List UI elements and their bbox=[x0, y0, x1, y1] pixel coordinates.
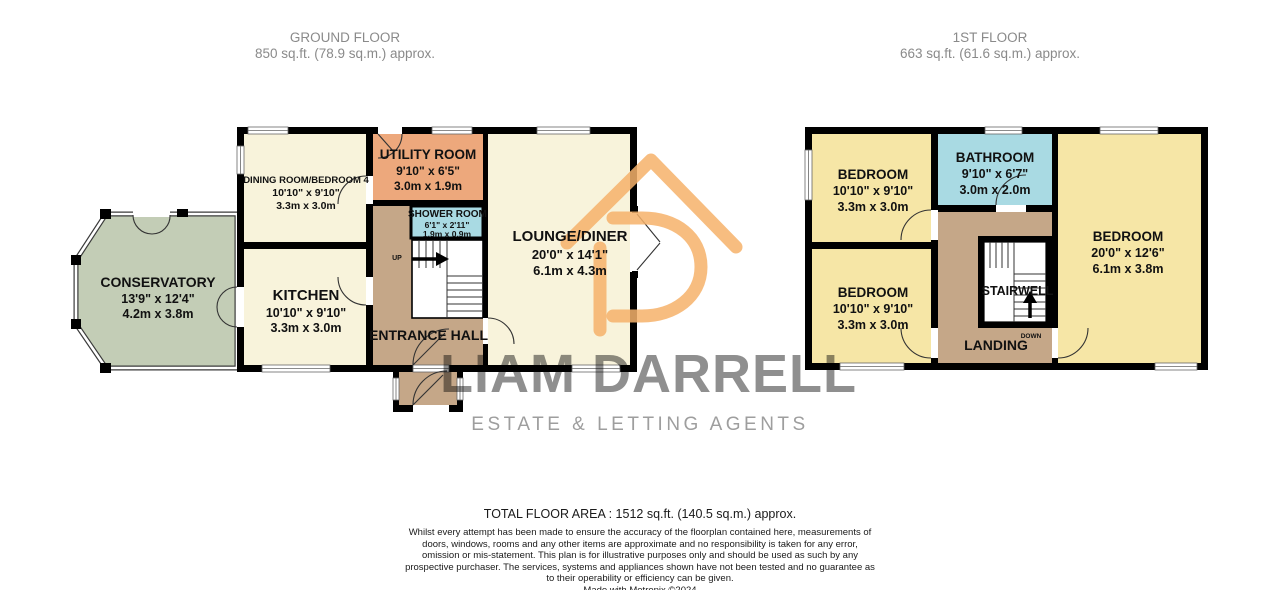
first-stairs bbox=[978, 236, 1052, 328]
room-dim-metric: 3.3m x 3.0m bbox=[246, 321, 366, 337]
floorplan-page: GROUND FLOOR 850 sq.ft. (78.9 sq.m.) app… bbox=[0, 0, 1280, 590]
room-dim-imperial: 20'0" x 14'1" bbox=[495, 247, 645, 263]
label-stairs-up: UP bbox=[388, 255, 406, 264]
label-utility-room: UTILITY ROOM 9'10" x 6'5" 3.0m x 1.9m bbox=[368, 147, 488, 194]
label-shower-room: SHOWER ROOM 6'1" x 2'11" 1.9m x 0.9m bbox=[408, 209, 486, 240]
room-dim-imperial: 9'10" x 6'5" bbox=[368, 164, 488, 179]
room-name: STAIRWELL bbox=[960, 284, 1075, 300]
room-name: DINING ROOM/BEDROOM 4 bbox=[243, 175, 369, 187]
room-name: BATHROOM bbox=[935, 150, 1055, 167]
room-dim-imperial: 20'0" x 12'6" bbox=[1055, 246, 1201, 262]
room-name: BEDROOM bbox=[1055, 229, 1201, 246]
stairs-direction: UP bbox=[388, 255, 406, 264]
room-dim-metric: 6.1m x 4.3m bbox=[495, 263, 645, 279]
room-dim-metric: 3.0m x 2.0m bbox=[935, 183, 1055, 199]
label-entrance-hall: ENTRANCE HALL bbox=[356, 327, 501, 345]
label-bedroom-bottom-left: BEDROOM 10'10" x 9'10" 3.3m x 3.0m bbox=[813, 285, 933, 333]
room-name: ENTRANCE HALL bbox=[356, 327, 501, 345]
label-lounge-diner: LOUNGE/DINER 20'0" x 14'1" 6.1m x 4.3m bbox=[495, 228, 645, 279]
room-dim-metric: 4.2m x 3.8m bbox=[88, 307, 228, 323]
room-dim-imperial: 9'10" x 6'7" bbox=[935, 167, 1055, 183]
room-dim-imperial: 13'9" x 12'4" bbox=[88, 292, 228, 308]
label-stairwell: STAIRWELL bbox=[960, 284, 1075, 300]
watermark-brand: LIAM DARRELL bbox=[440, 347, 840, 401]
room-dim-metric: 1.9m x 0.9m bbox=[408, 230, 486, 240]
label-bedroom-top-left: BEDROOM 10'10" x 9'10" 3.3m x 3.0m bbox=[813, 167, 933, 215]
footer-disclaimer: Whilst every attempt has been made to en… bbox=[405, 527, 875, 590]
label-dining-room: DINING ROOM/BEDROOM 4 10'10" x 9'10" 3.3… bbox=[243, 175, 369, 213]
disclaimer-text: Whilst every attempt has been made to en… bbox=[405, 527, 875, 585]
room-dim-metric: 3.3m x 3.0m bbox=[813, 200, 933, 216]
room-name: LANDING bbox=[935, 337, 1057, 355]
metropix-credit: Made with Metropix ©2024 bbox=[405, 585, 875, 590]
watermark-tagline: ESTATE & LETTING AGENTS bbox=[420, 414, 860, 436]
room-name: BEDROOM bbox=[813, 285, 933, 302]
total-floor-area: TOTAL FLOOR AREA : 1512 sq.ft. (140.5 sq… bbox=[390, 507, 890, 521]
room-name: LOUNGE/DINER bbox=[495, 228, 645, 247]
room-dim-metric: 3.3m x 3.0m bbox=[243, 200, 369, 213]
room-dim-imperial: 10'10" x 9'10" bbox=[813, 184, 933, 200]
room-dim-imperial: 10'10" x 9'10" bbox=[243, 187, 369, 200]
room-dim-imperial: 10'10" x 9'10" bbox=[246, 306, 366, 322]
room-name: CONSERVATORY bbox=[88, 274, 228, 292]
room-dim-imperial: 10'10" x 9'10" bbox=[813, 302, 933, 318]
label-bathroom: BATHROOM 9'10" x 6'7" 3.0m x 2.0m bbox=[935, 150, 1055, 198]
label-landing: LANDING bbox=[935, 337, 1057, 355]
room-name: UTILITY ROOM bbox=[368, 147, 488, 164]
label-conservatory: CONSERVATORY 13'9" x 12'4" 4.2m x 3.8m bbox=[88, 274, 228, 323]
label-kitchen: KITCHEN 10'10" x 9'10" 3.3m x 3.0m bbox=[246, 287, 366, 337]
room-dim-metric: 3.3m x 3.0m bbox=[813, 318, 933, 334]
room-name: BEDROOM bbox=[813, 167, 933, 184]
room-dim-metric: 3.0m x 1.9m bbox=[368, 179, 488, 194]
room-name: KITCHEN bbox=[246, 287, 366, 306]
label-bedroom-right: BEDROOM 20'0" x 12'6" 6.1m x 3.8m bbox=[1055, 229, 1201, 277]
ground-stairs bbox=[412, 240, 483, 318]
room-name: SHOWER ROOM bbox=[408, 209, 486, 221]
room-dim-metric: 6.1m x 3.8m bbox=[1055, 262, 1201, 278]
